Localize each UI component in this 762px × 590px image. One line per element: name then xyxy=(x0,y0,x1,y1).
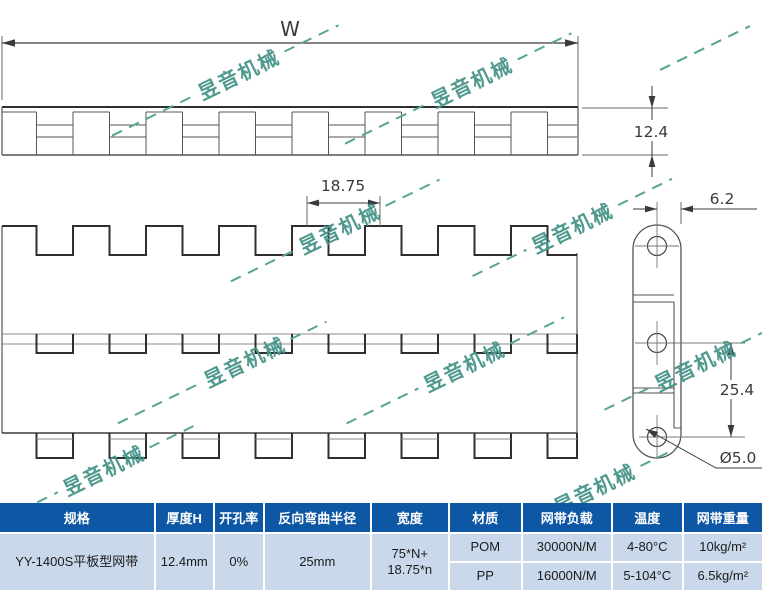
belt-technical-drawing: W 12.4 xyxy=(0,0,762,500)
plate-width-arrow-right xyxy=(681,206,693,213)
row-joint-lines xyxy=(2,334,577,344)
belt-end-edges xyxy=(2,107,578,155)
hinge-spacing-arrow-top xyxy=(728,343,735,355)
cell-spec: YY-1400S平板型网带 xyxy=(0,534,154,590)
pitch-arrow-right xyxy=(368,200,380,207)
cell-thickness: 12.4mm xyxy=(156,534,214,590)
hole-centerlines xyxy=(635,202,745,459)
thickness-dimension: 12.4 xyxy=(582,86,672,177)
plate-width-arrow-left xyxy=(645,206,657,213)
hinge-pin-lines xyxy=(37,125,578,137)
cell-load-pp: 16000N/M xyxy=(523,563,611,590)
cell-reverse-bend-radius: 25mm xyxy=(265,534,371,590)
header-temperature: 温度 xyxy=(613,503,683,532)
row2-bottom-tabs xyxy=(37,433,578,458)
module-divider-lines xyxy=(37,112,548,155)
cell-open-ratio: 0% xyxy=(215,534,263,590)
hole-diameter-callout: Ø5.0 xyxy=(646,429,762,468)
header-spec: 规格 xyxy=(0,503,154,532)
pitch-dimension: 18.75 xyxy=(307,177,380,226)
thickness-label: 12.4 xyxy=(634,123,669,141)
belt-plan-view xyxy=(2,226,577,458)
pitch-arrow-left xyxy=(307,200,319,207)
header-weight: 网带重量 xyxy=(684,503,762,532)
cell-material-pp: PP xyxy=(450,563,522,590)
header-width: 宽度 xyxy=(372,503,448,532)
belt-side-elevation xyxy=(2,107,578,155)
belt-datasheet-page: W 12.4 xyxy=(0,0,762,590)
plate-width-label: 6.2 xyxy=(710,190,735,208)
w-dimension-label: W xyxy=(280,17,300,41)
thickness-arrow-top xyxy=(649,96,656,108)
thickness-arrow-bottom xyxy=(649,155,656,167)
w-extension-lines xyxy=(2,36,578,107)
w-arrow-right xyxy=(565,39,578,47)
pitch-label: 18.75 xyxy=(321,177,365,195)
cell-temperature-pom: 4-80°C xyxy=(613,534,683,561)
hinge-spacing-label: 25.4 xyxy=(720,381,755,399)
header-reverse-bend-radius: 反向弯曲半径 xyxy=(265,503,371,532)
cell-weight-pom: 10kg/m² xyxy=(684,534,762,561)
header-thickness: 厚度H xyxy=(156,503,214,532)
hinge-spacing-dimension: 25.4 xyxy=(713,343,761,437)
cell-width-formula: 75*N+ 18.75*n xyxy=(372,534,448,590)
edge-link-side-view xyxy=(633,202,745,459)
cell-temperature-pp: 5-104°C xyxy=(613,563,683,590)
w-dimension: W xyxy=(2,17,578,107)
width-formula-line1: 75*N+ xyxy=(392,546,429,562)
header-load: 网带负载 xyxy=(523,503,611,532)
hole-diameter-label: Ø5.0 xyxy=(720,449,757,467)
spec-table: 规格 厚度H 开孔率 反向弯曲半径 宽度 材质 网带负载 温度 网带重量 YY-… xyxy=(0,503,762,590)
cell-material-pom: POM xyxy=(450,534,522,561)
plate-width-dimension: 6.2 xyxy=(633,190,757,224)
header-open-ratio: 开孔率 xyxy=(215,503,263,532)
w-arrow-left xyxy=(2,39,15,47)
width-formula-line2: 18.75*n xyxy=(387,562,432,578)
header-material: 材质 xyxy=(450,503,522,532)
cell-load-pom: 30000N/M xyxy=(523,534,611,561)
hinge-spacing-arrow-bottom xyxy=(728,425,735,437)
cell-weight-pp: 6.5kg/m² xyxy=(684,563,762,590)
row1-castellated-top-edge xyxy=(2,226,577,255)
